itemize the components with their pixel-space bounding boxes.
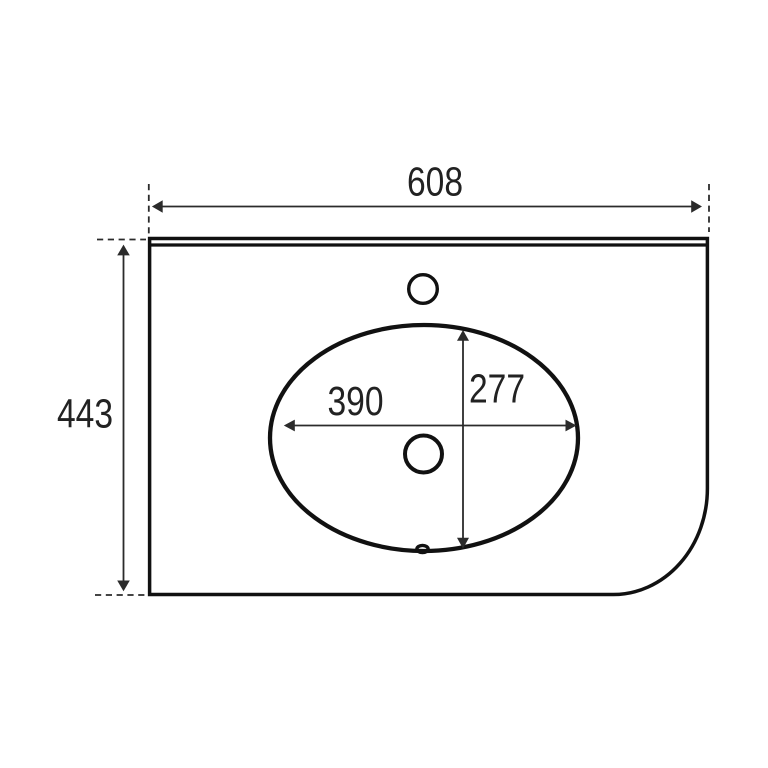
- svg-text:443: 443: [57, 390, 113, 436]
- svg-text:390: 390: [327, 378, 383, 424]
- svg-text:277: 277: [469, 365, 525, 411]
- svg-text:608: 608: [407, 158, 463, 204]
